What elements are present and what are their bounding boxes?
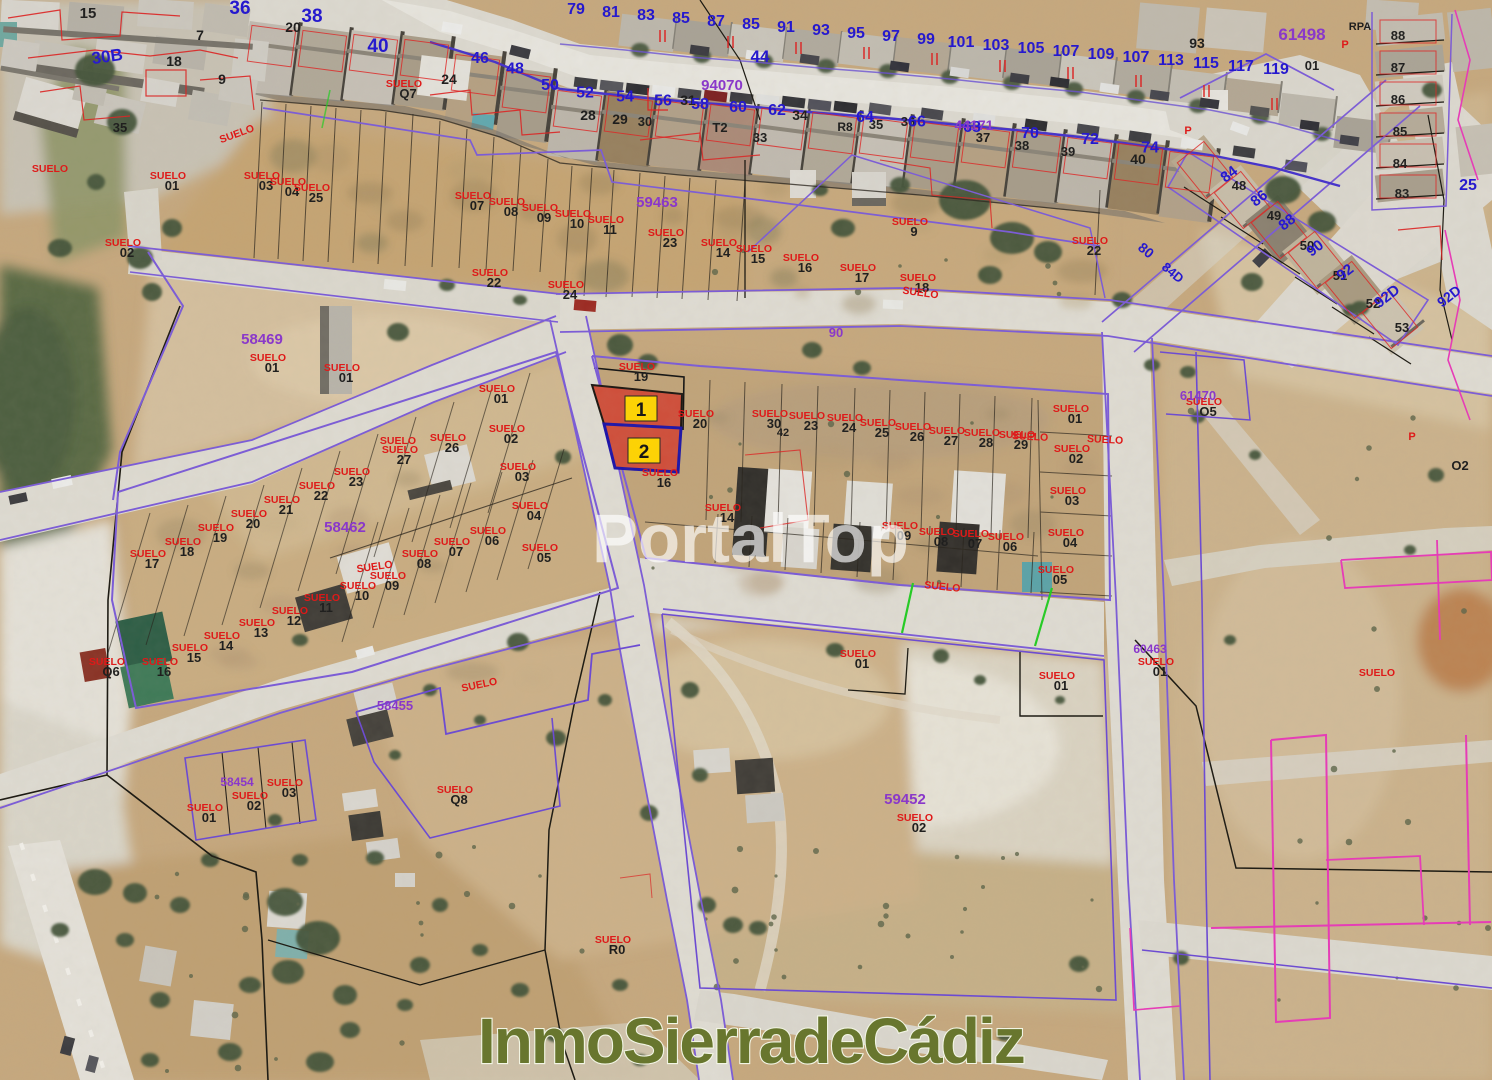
svg-text:InmoSierradeCádiz: InmoSierradeCádiz <box>478 1005 1024 1077</box>
svg-text:PortalTop: PortalTop <box>592 500 909 577</box>
